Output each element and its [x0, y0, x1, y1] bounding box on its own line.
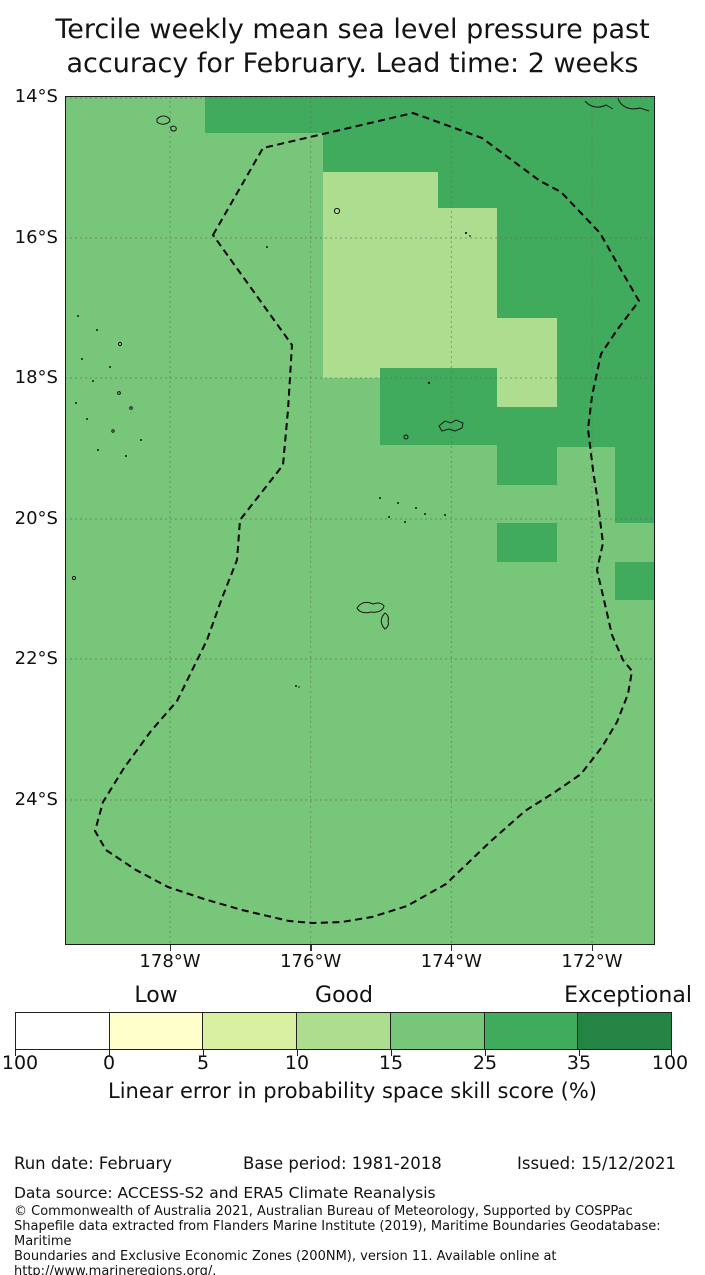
colorbar-segment-1 — [109, 1013, 203, 1049]
colorbar-segment-5 — [484, 1013, 578, 1049]
figure-page: Tercile weekly mean sea level pressure p… — [0, 0, 705, 1275]
lon-tick-label: 178°W — [115, 951, 225, 972]
lat-tick-label: 20°S — [0, 508, 58, 530]
colorbar-tick-label: 100 — [652, 1052, 688, 1074]
lat-tick-label: 16°S — [0, 227, 58, 249]
colorbar-tick-label: 100 — [2, 1052, 38, 1074]
run-date-text: Run date: February — [14, 1154, 172, 1173]
skill-cell-dark — [615, 562, 655, 600]
copyright-text: © Commonwealth of Australia 2021, Austra… — [14, 1204, 699, 1275]
colorbar-band-label-exceptional: Exceptional — [564, 983, 692, 1008]
colorbar-tick-label: 35 — [567, 1052, 591, 1074]
base-period-text: Base period: 1981-2018 — [243, 1154, 442, 1173]
colorbar-tick-label: 25 — [473, 1052, 497, 1074]
lat-tick-label: 14°S — [0, 86, 58, 108]
lon-tick-label: 172°W — [537, 951, 647, 972]
figure-title-line-1: Tercile weekly mean sea level pressure p… — [0, 13, 705, 47]
colorbar-segment-3 — [296, 1013, 390, 1049]
colorbar-band-label-good: Good — [315, 983, 373, 1008]
skill-cell-light — [323, 172, 438, 378]
lon-tick-label: 176°W — [256, 951, 366, 972]
issued-text: Issued: 15/12/2021 — [517, 1154, 676, 1173]
colorbar-tick-label: 15 — [379, 1052, 403, 1074]
colorbar-segment-6 — [577, 1013, 671, 1049]
colorbar-segment-4 — [390, 1013, 484, 1049]
colorbar-band-label-low: Low — [134, 983, 177, 1008]
colorbar-tick-label: 5 — [197, 1052, 209, 1074]
skill-cell-light — [438, 208, 497, 378]
colorbar-segment-0 — [16, 1013, 109, 1049]
map-canvas — [65, 96, 655, 945]
colorbar-tick-label: 0 — [103, 1052, 115, 1074]
skill-cell-dark — [497, 523, 557, 562]
lat-tick-label: 24°S — [0, 789, 58, 811]
skill-cell-dark — [380, 368, 497, 445]
lat-tick-label: 22°S — [0, 648, 58, 670]
colorbar-caption: Linear error in probability space skill … — [0, 1079, 705, 1103]
figure-title: Tercile weekly mean sea level pressure p… — [0, 13, 705, 81]
figure-title-line-2: accuracy for February. Lead time: 2 week… — [0, 47, 705, 81]
lat-tick-label: 18°S — [0, 367, 58, 389]
lon-tick-label: 174°W — [396, 951, 506, 972]
colorbar — [15, 1012, 672, 1050]
colorbar-segment-2 — [202, 1013, 296, 1049]
skill-cell-light — [497, 318, 557, 407]
skill-cell-dark — [497, 407, 557, 485]
data-source-text: Data source: ACCESS-S2 and ERA5 Climate … — [14, 1184, 436, 1202]
colorbar-tick-label: 10 — [285, 1052, 309, 1074]
